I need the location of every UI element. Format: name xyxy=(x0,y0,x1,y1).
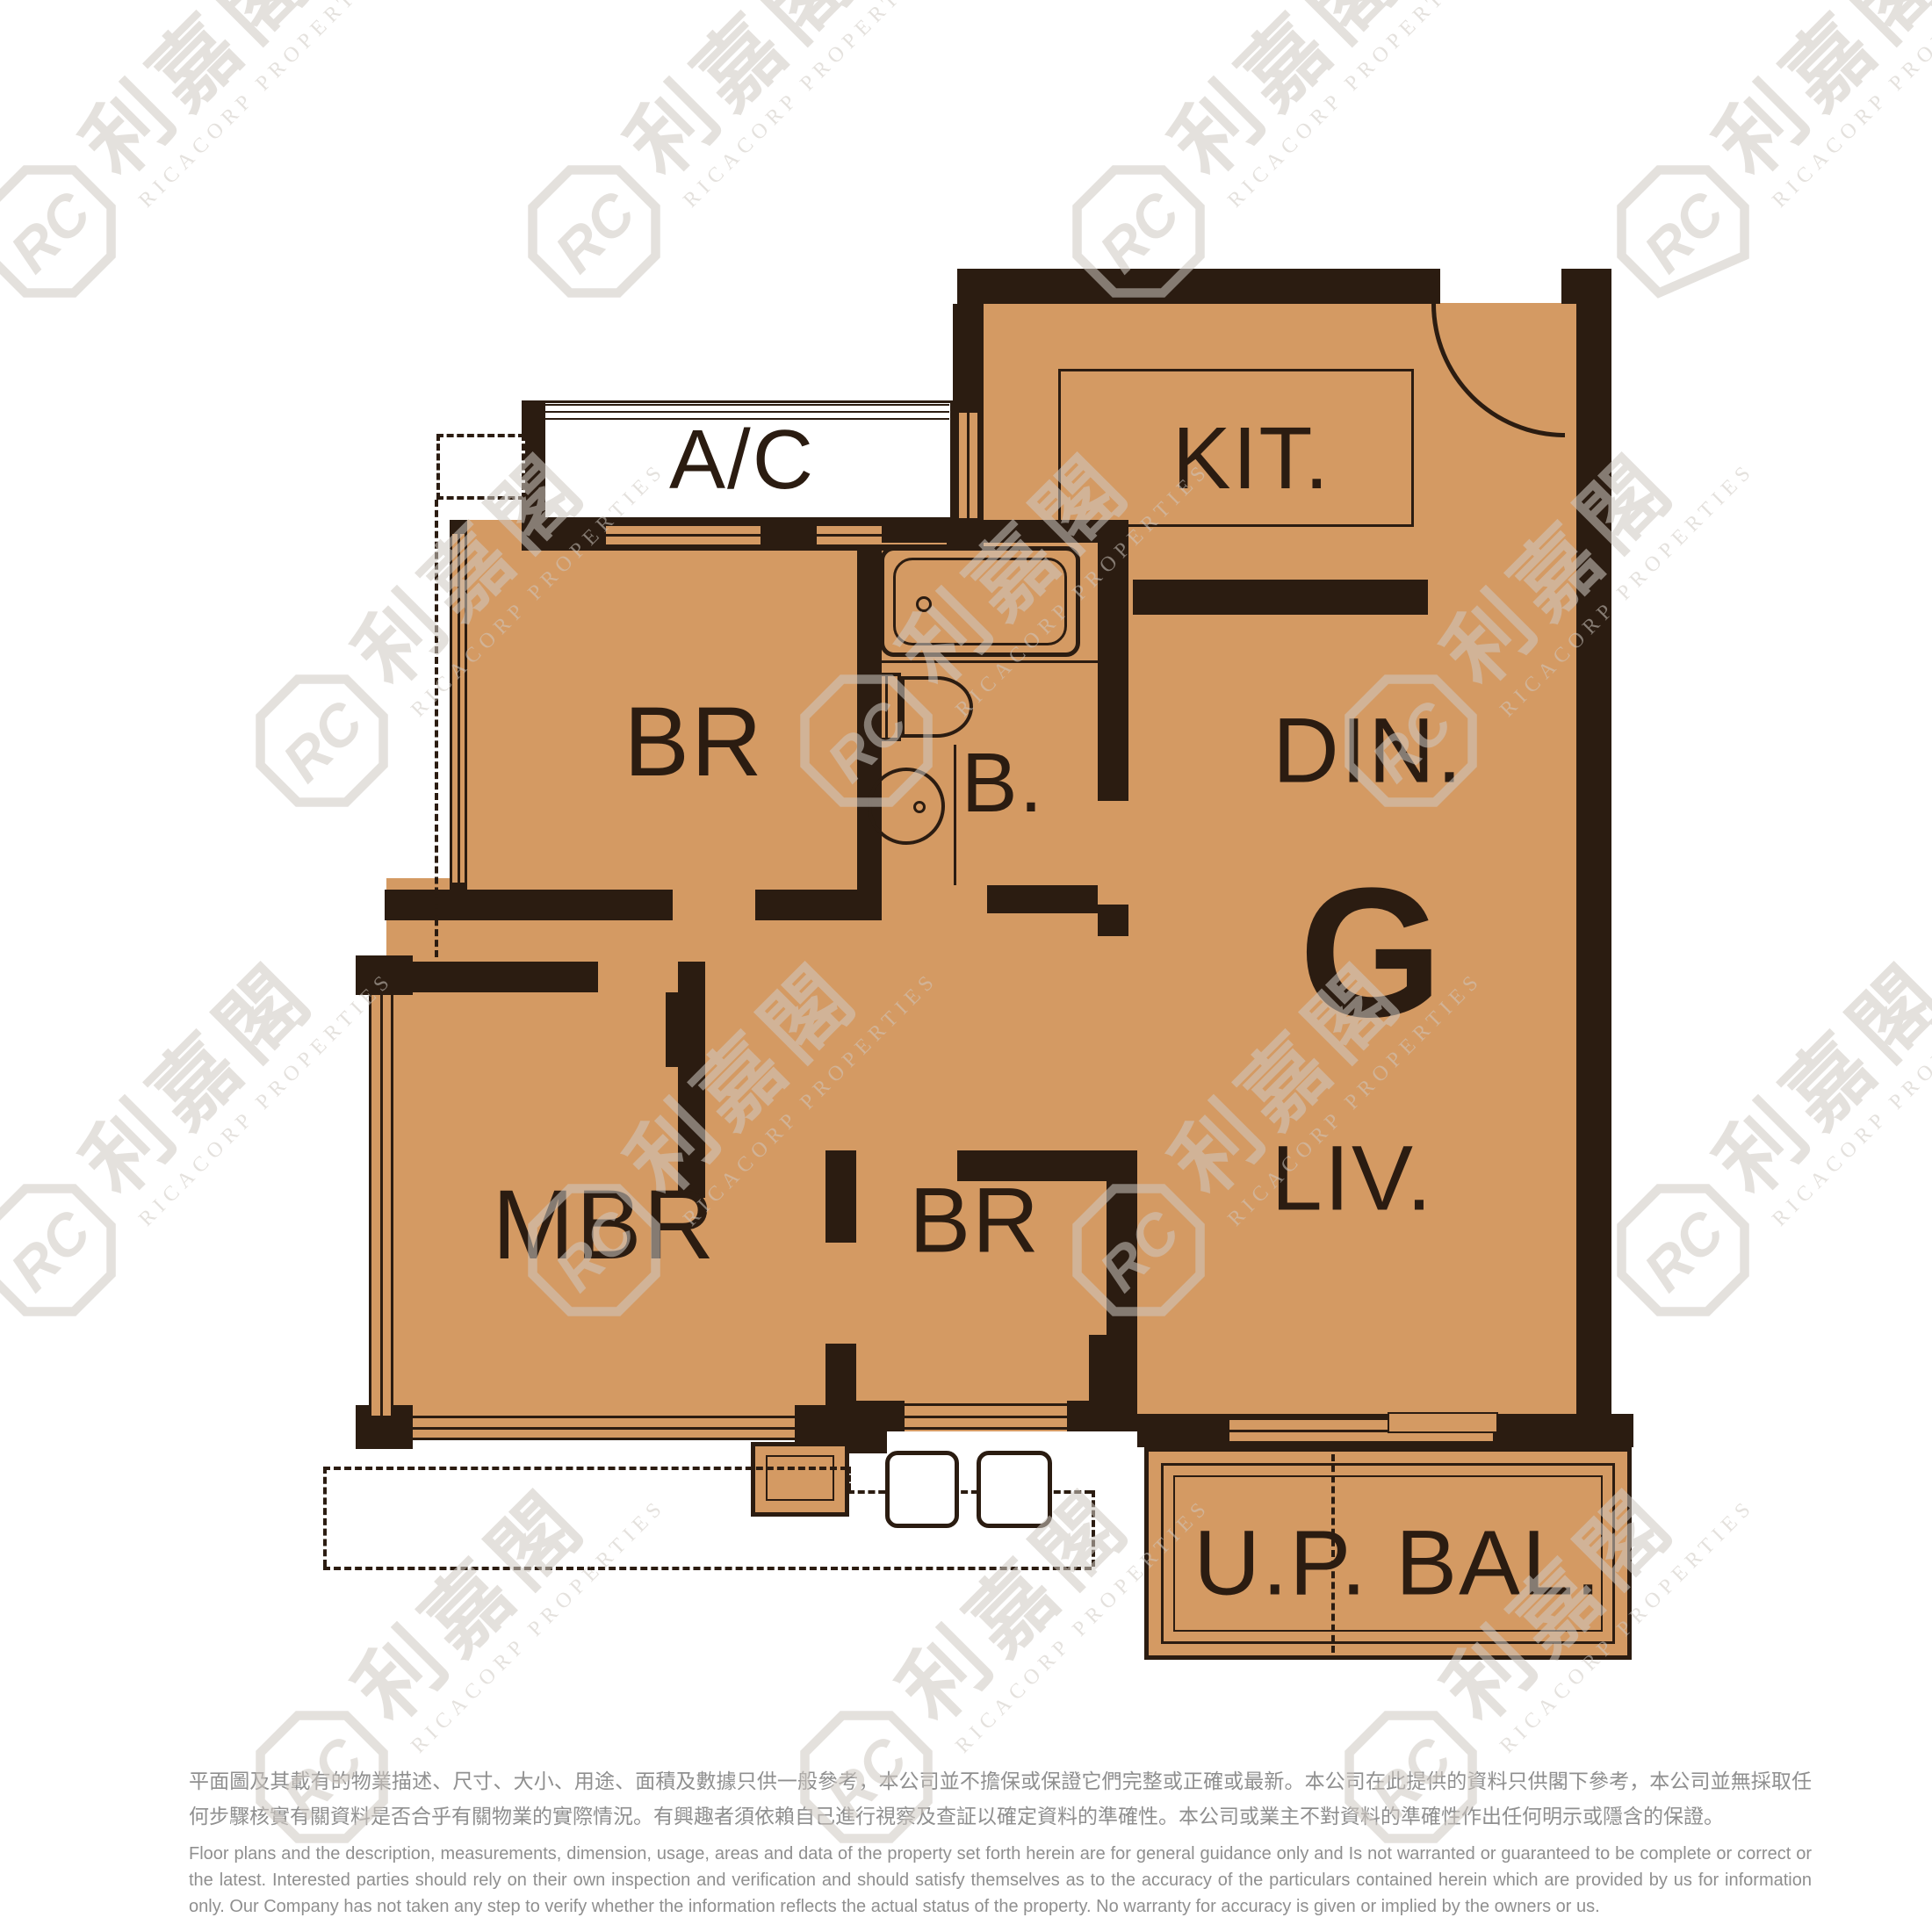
toilet-tank-line xyxy=(885,676,888,738)
logo-monogram: RC xyxy=(1631,178,1737,285)
wall xyxy=(393,962,598,992)
window xyxy=(905,1403,1067,1430)
ricacorp-logo-icon: RC xyxy=(501,138,687,324)
window xyxy=(450,534,467,890)
logo-monogram: RC xyxy=(1631,1197,1737,1303)
watermark-latin: RICACORP PROPERTIES xyxy=(679,0,943,213)
ricacorp-logo-icon: RC xyxy=(0,138,143,324)
room-label-bedroom1: BR xyxy=(624,693,764,791)
sink-drain xyxy=(913,801,926,813)
bathroom-divider-line xyxy=(882,660,1098,663)
watermark: RC 利嘉閣 RICACORP PROPERTIES xyxy=(501,0,948,325)
room-label-ac: A/C xyxy=(669,418,815,502)
window-bay-inner xyxy=(766,1455,834,1501)
room-label-kitchen: KIT. xyxy=(1172,415,1330,502)
ac-hood-dashed-box xyxy=(436,434,525,500)
dashed-line xyxy=(1092,1490,1095,1567)
ac-unit xyxy=(977,1451,1052,1528)
watermark: RC 利嘉閣 RICACORP PROPERTIES xyxy=(1590,896,1932,1343)
dashed-line xyxy=(323,1467,327,1567)
ac-unit xyxy=(885,1451,959,1528)
watermark-latin: RICACORP PROPERTIES xyxy=(1768,0,1932,213)
wall xyxy=(1098,905,1128,936)
wall xyxy=(522,400,545,523)
logo-monogram: RC xyxy=(0,178,104,285)
room-label-master-bedroom: MBR xyxy=(493,1176,717,1274)
window xyxy=(413,1416,795,1440)
room-label-bathroom: B. xyxy=(962,741,1045,825)
dashed-line xyxy=(847,1490,1092,1494)
watermark-cjk: 利嘉閣 xyxy=(1157,0,1464,190)
dashed-line xyxy=(323,1567,1092,1570)
watermark-latin: RICACORP PROPERTIES xyxy=(1768,967,1932,1231)
dashed-line xyxy=(435,500,438,957)
wall xyxy=(755,890,882,920)
watermark: RC 利嘉閣 RICACORP PROPERTIES xyxy=(1590,0,1932,325)
watermark-cjk: 利嘉閣 xyxy=(68,0,375,190)
wall xyxy=(450,883,467,920)
watermark-latin: RICACORP PROPERTIES xyxy=(1223,0,1488,213)
watermark-cjk: 利嘉閣 xyxy=(613,0,919,190)
watermark-latin: RICACORP PROPERTIES xyxy=(407,1494,671,1758)
disclaimer-block: 平面圖及其載有的物業描述、尺寸、大小、用途、面積及數據只供一般參考，本公司並不擔… xyxy=(189,1763,1812,1920)
ricacorp-logo-icon: RC xyxy=(1590,138,1776,324)
logo-monogram: RC xyxy=(270,688,376,794)
room-label-dining: DIN. xyxy=(1272,705,1464,797)
toilet-tank xyxy=(871,673,901,741)
room-label-living: LIV. xyxy=(1271,1133,1433,1225)
wall xyxy=(385,890,673,920)
watermark-cjk: 利嘉閣 xyxy=(341,1428,647,1734)
toilet-bowl xyxy=(901,676,973,738)
ricacorp-logo-icon: RC xyxy=(1590,1157,1776,1343)
watermark: RC 利嘉閣 RICACORP PROPERTIES xyxy=(0,0,404,325)
ricacorp-logo-icon: RC xyxy=(228,647,415,833)
wall xyxy=(987,885,1098,913)
wall xyxy=(856,1401,905,1431)
wall xyxy=(356,955,413,995)
wall xyxy=(957,269,1440,304)
dashed-line xyxy=(847,1467,851,1490)
watermark-latin: RICACORP PROPERTIES xyxy=(134,967,399,1231)
room-label-utility-balcony: U.P. BAL. xyxy=(1193,1517,1602,1610)
wall xyxy=(1576,269,1611,1447)
bathtub xyxy=(880,546,1080,657)
vanity-line xyxy=(954,745,956,885)
room-label-bedroom2: BR xyxy=(909,1175,1041,1267)
dashed-line xyxy=(323,1467,847,1470)
floor-plan-canvas: A/C KIT. BR B. DIN. G LIV. MBR BR U.P. B… xyxy=(0,0,1932,1932)
window xyxy=(369,995,393,1416)
disclaimer-chinese: 平面圖及其載有的物業描述、尺寸、大小、用途、面積及數據只供一般參考，本公司並不擔… xyxy=(189,1763,1812,1834)
wall xyxy=(678,962,705,1198)
window-bay xyxy=(751,1442,849,1517)
unit-letter: G xyxy=(1299,861,1444,1045)
logo-monogram: RC xyxy=(542,178,648,285)
watermark-latin: RICACORP PROPERTIES xyxy=(134,0,399,213)
disclaimer-english: Floor plans and the description, measure… xyxy=(189,1841,1812,1920)
bathtub-drain xyxy=(916,596,932,612)
window xyxy=(956,413,980,518)
sink xyxy=(868,768,945,845)
window xyxy=(606,523,761,547)
wall xyxy=(825,1344,856,1431)
wall xyxy=(825,1150,856,1181)
wall xyxy=(1098,520,1128,801)
watermark-cjk: 利嘉閣 xyxy=(68,901,375,1207)
ricacorp-logo-icon: RC xyxy=(0,1157,143,1343)
watermark-cjk: 利嘉閣 xyxy=(1702,0,1932,190)
window-step xyxy=(1388,1412,1498,1433)
logo-monogram: RC xyxy=(0,1197,104,1303)
wall xyxy=(825,1181,856,1243)
wall xyxy=(1133,580,1428,615)
wall xyxy=(1067,1401,1107,1431)
watermark: RC 利嘉閣 RICACORP PROPERTIES xyxy=(0,896,404,1343)
watermark-cjk: 利嘉閣 xyxy=(1702,901,1932,1207)
